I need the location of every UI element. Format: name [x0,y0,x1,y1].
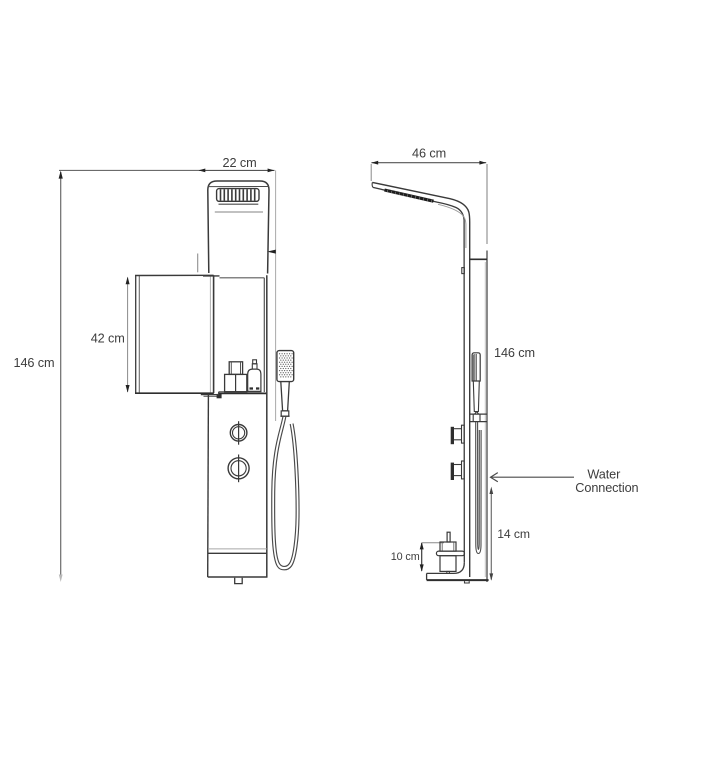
svg-text:46 cm: 46 cm [412,146,446,160]
svg-text:Water: Water [587,467,621,481]
svg-text:146 cm: 146 cm [14,356,55,370]
svg-text:10 cm: 10 cm [391,551,420,563]
svg-text:42 cm: 42 cm [91,331,125,345]
svg-text:146 cm: 146 cm [494,346,535,360]
svg-text:14 cm: 14 cm [497,527,530,541]
svg-text:22 cm: 22 cm [223,156,257,170]
svg-text:Connection: Connection [575,481,638,495]
